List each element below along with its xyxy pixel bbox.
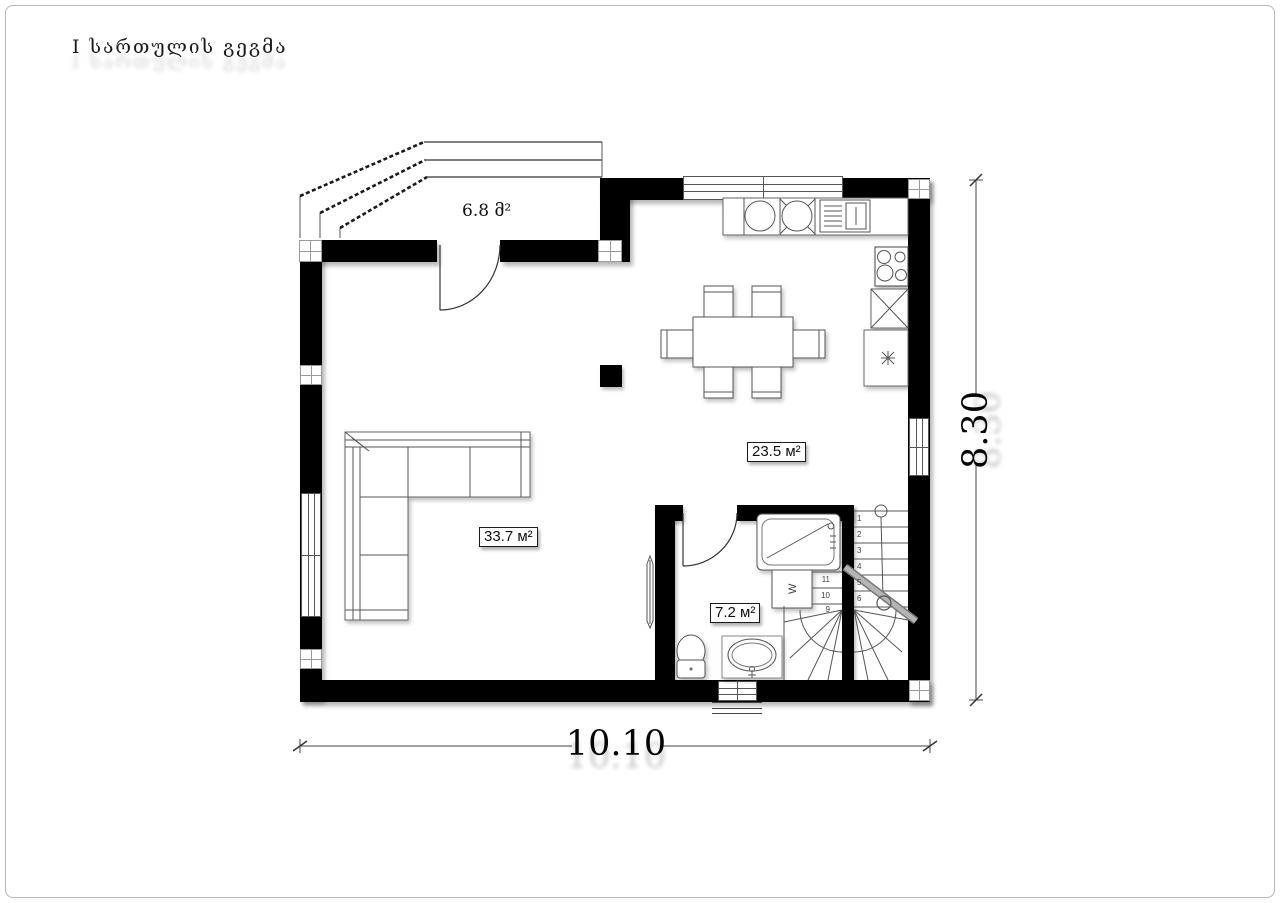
window-sill — [712, 702, 762, 714]
wall-joint — [909, 180, 929, 198]
page-border — [5, 5, 1275, 898]
wall-bathroom-top — [737, 505, 854, 521]
plan-title: I სართულის გეგმა — [72, 36, 288, 58]
wall-stair-middle — [842, 505, 854, 680]
window-kitchen-top — [683, 176, 843, 200]
floor-plan: I სართულის გეგმა — [0, 0, 1280, 903]
wall-joint — [910, 681, 929, 700]
window-stairs-right — [909, 418, 929, 476]
wall-joint — [300, 241, 321, 261]
wall-front-right — [500, 240, 600, 262]
bathroom-area-label: 7.2 м² — [710, 603, 760, 623]
wall-bathroom-top-stub — [655, 505, 683, 521]
window-living-left — [301, 493, 321, 617]
kitchen-area-label: 23.5 м² — [747, 442, 806, 462]
porch-area-label: 6.8 მ² — [462, 201, 511, 221]
dimension-width-value: 10.10 — [566, 724, 666, 764]
window-bathroom-bottom — [718, 681, 757, 701]
wall-bottom — [300, 680, 930, 702]
wall-left — [300, 240, 322, 700]
wall-joint — [301, 650, 321, 668]
column — [600, 365, 622, 387]
living-area-label: 33.7 м² — [479, 527, 538, 547]
wall-joint — [301, 366, 321, 384]
wall-joint — [599, 241, 621, 261]
dimension-height-value: 8.30 — [956, 391, 996, 469]
wall-bathroom-left — [655, 505, 675, 680]
